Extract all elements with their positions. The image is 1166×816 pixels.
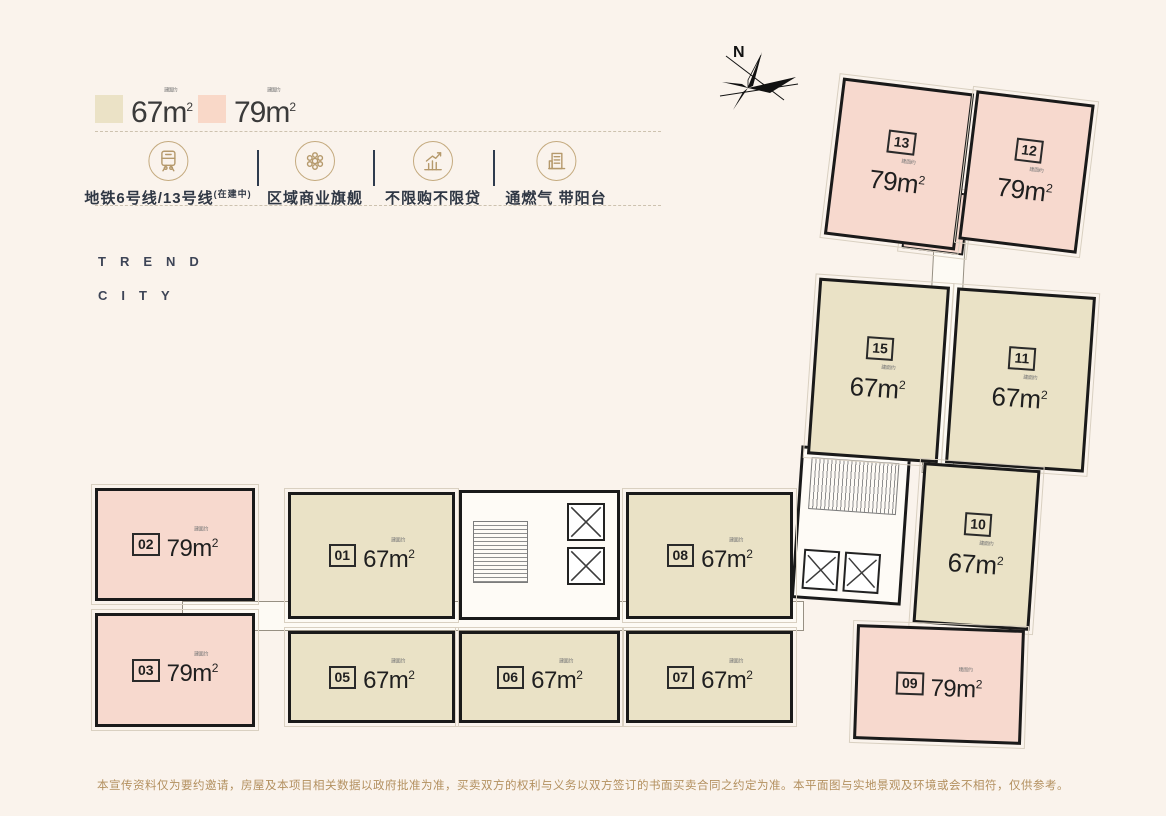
unit-area: 79 [867, 163, 898, 197]
unit-13: 13 79建面约m2 [824, 78, 974, 251]
unit-label: 03 79建面约m2 [132, 652, 218, 688]
legend-item-79: 79 建面约m2 [198, 88, 295, 130]
gas-balcony-icon [536, 141, 576, 181]
unit-03: 03 79建面约m2 [95, 613, 255, 727]
area-note: 建面约 [267, 88, 280, 93]
unit-number: 02 [132, 533, 160, 556]
unit-label: 09 79建面约m2 [895, 665, 982, 704]
unit-label: 12 79建面约m2 [995, 135, 1058, 208]
unit-label: 06 67建面约m2 [497, 659, 583, 695]
unit-09: 09 79建面约m2 [853, 624, 1025, 745]
unit-number: 07 [667, 666, 695, 689]
unit-label: 01 67建面约m2 [329, 538, 415, 574]
legend-label-79: 79 建面约m2 [234, 88, 295, 130]
unit-label: 11 67建面约m2 [991, 345, 1051, 416]
area-note: 建面约 [164, 88, 177, 93]
unit-label: 10 67建面约m2 [947, 511, 1007, 582]
legend-label-67: 67 建面约m2 [131, 88, 192, 130]
elevator-shaft [842, 552, 881, 594]
chart-icon [413, 141, 453, 181]
unit-number: 01 [329, 544, 357, 567]
compass-north-label: N [733, 44, 745, 62]
brand-line-2: CITY [98, 279, 213, 313]
elevator-shaft [801, 549, 840, 591]
feature-nolimit: 不限购不限贷 [385, 141, 481, 208]
stairs [473, 521, 528, 583]
unit-number: 15 [865, 336, 894, 361]
unit-number: 12 [1014, 137, 1044, 163]
unit-15: 15 67建面约m2 [807, 278, 950, 464]
legend-item-67: 67 建面约m2 [95, 88, 192, 130]
unit-label: 08 67建面约m2 [667, 538, 753, 574]
core-stair-elevator-bottom [459, 490, 620, 620]
feature-metro: 地铁6号线/13号线(在建中) [84, 141, 251, 208]
unit-12: 12 79建面约m2 [958, 90, 1094, 253]
feature-separator [493, 150, 495, 186]
unit-area: 67 [947, 547, 977, 580]
unit-number: 08 [667, 544, 695, 567]
unit-area: 67 [849, 371, 879, 404]
unit-area: 79 [930, 674, 957, 703]
feature-gas-balcony: 通燃气 带阳台 [505, 141, 606, 208]
unit-label: 05 67建面约m2 [329, 659, 415, 695]
unit-01: 01 67建面约m2 [288, 492, 455, 619]
unit-area: 67 [363, 546, 389, 574]
unit-label: 07 67建面约m2 [667, 659, 753, 695]
feature-mall: 区域商业旗舰 [267, 141, 363, 208]
metro-icon [148, 141, 188, 181]
legend-swatch-67 [95, 95, 123, 123]
unit-10: 10 67建面约m2 [913, 462, 1041, 631]
disclaimer-text: 本宣传资料仅为要约邀请，房屋及本项目相关数据以政府批准为准，买卖双方的权利与义务… [0, 777, 1166, 793]
unit-number: 06 [497, 666, 525, 689]
legend-area-value: 67 [131, 96, 162, 130]
unit-number: 05 [329, 666, 357, 689]
unit-07: 07 67建面约m2 [626, 631, 793, 723]
unit-number: 11 [1008, 346, 1036, 371]
unit-area: 67 [991, 381, 1021, 414]
unit-area: 79 [167, 660, 193, 688]
divider-dashed-bottom [95, 205, 661, 206]
unit-06: 06 67建面约m2 [459, 631, 620, 723]
unit-05: 05 67建面约m2 [288, 631, 455, 723]
unit-11: 11 67建面约m2 [945, 287, 1096, 472]
unit-number: 10 [963, 512, 992, 537]
elevator-shaft [567, 547, 605, 585]
divider-dashed-top [95, 131, 661, 132]
stairs [808, 457, 899, 515]
unit-area: 79 [167, 535, 193, 563]
unit-area: 67 [701, 667, 727, 695]
feature-separator [373, 150, 375, 186]
unit-area: 67 [531, 667, 557, 695]
unit-number: 13 [887, 129, 917, 155]
unit-number: 09 [896, 672, 924, 696]
unit-02: 02 79建面约m2 [95, 488, 255, 601]
feature-separator [257, 150, 259, 186]
brand-line-1: TREND [98, 245, 213, 279]
unit-label: 15 67建面约m2 [849, 335, 909, 406]
legend-area-value: 79 [234, 96, 265, 130]
floorplan-poster: 67 建面约m2 79 建面约m2 地铁6号线/13号线(在建中) 区域商业旗舰… [0, 0, 1166, 816]
unit-area: 67 [701, 546, 727, 574]
legend-swatch-79 [198, 95, 226, 123]
elevator-shaft [567, 503, 605, 541]
brand-wordmark: TREND CITY [98, 245, 213, 313]
unit-area: 79 [995, 171, 1026, 205]
unit-label: 13 79建面约m2 [867, 127, 930, 200]
north-compass-icon [712, 36, 804, 128]
unit-area: 67 [363, 667, 389, 695]
core-stair-elevator-junction [791, 445, 911, 605]
unit-number: 03 [132, 659, 160, 682]
unit-label: 02 79建面约m2 [132, 527, 218, 563]
unit-08: 08 67建面约m2 [626, 492, 793, 619]
mall-icon [295, 141, 335, 181]
